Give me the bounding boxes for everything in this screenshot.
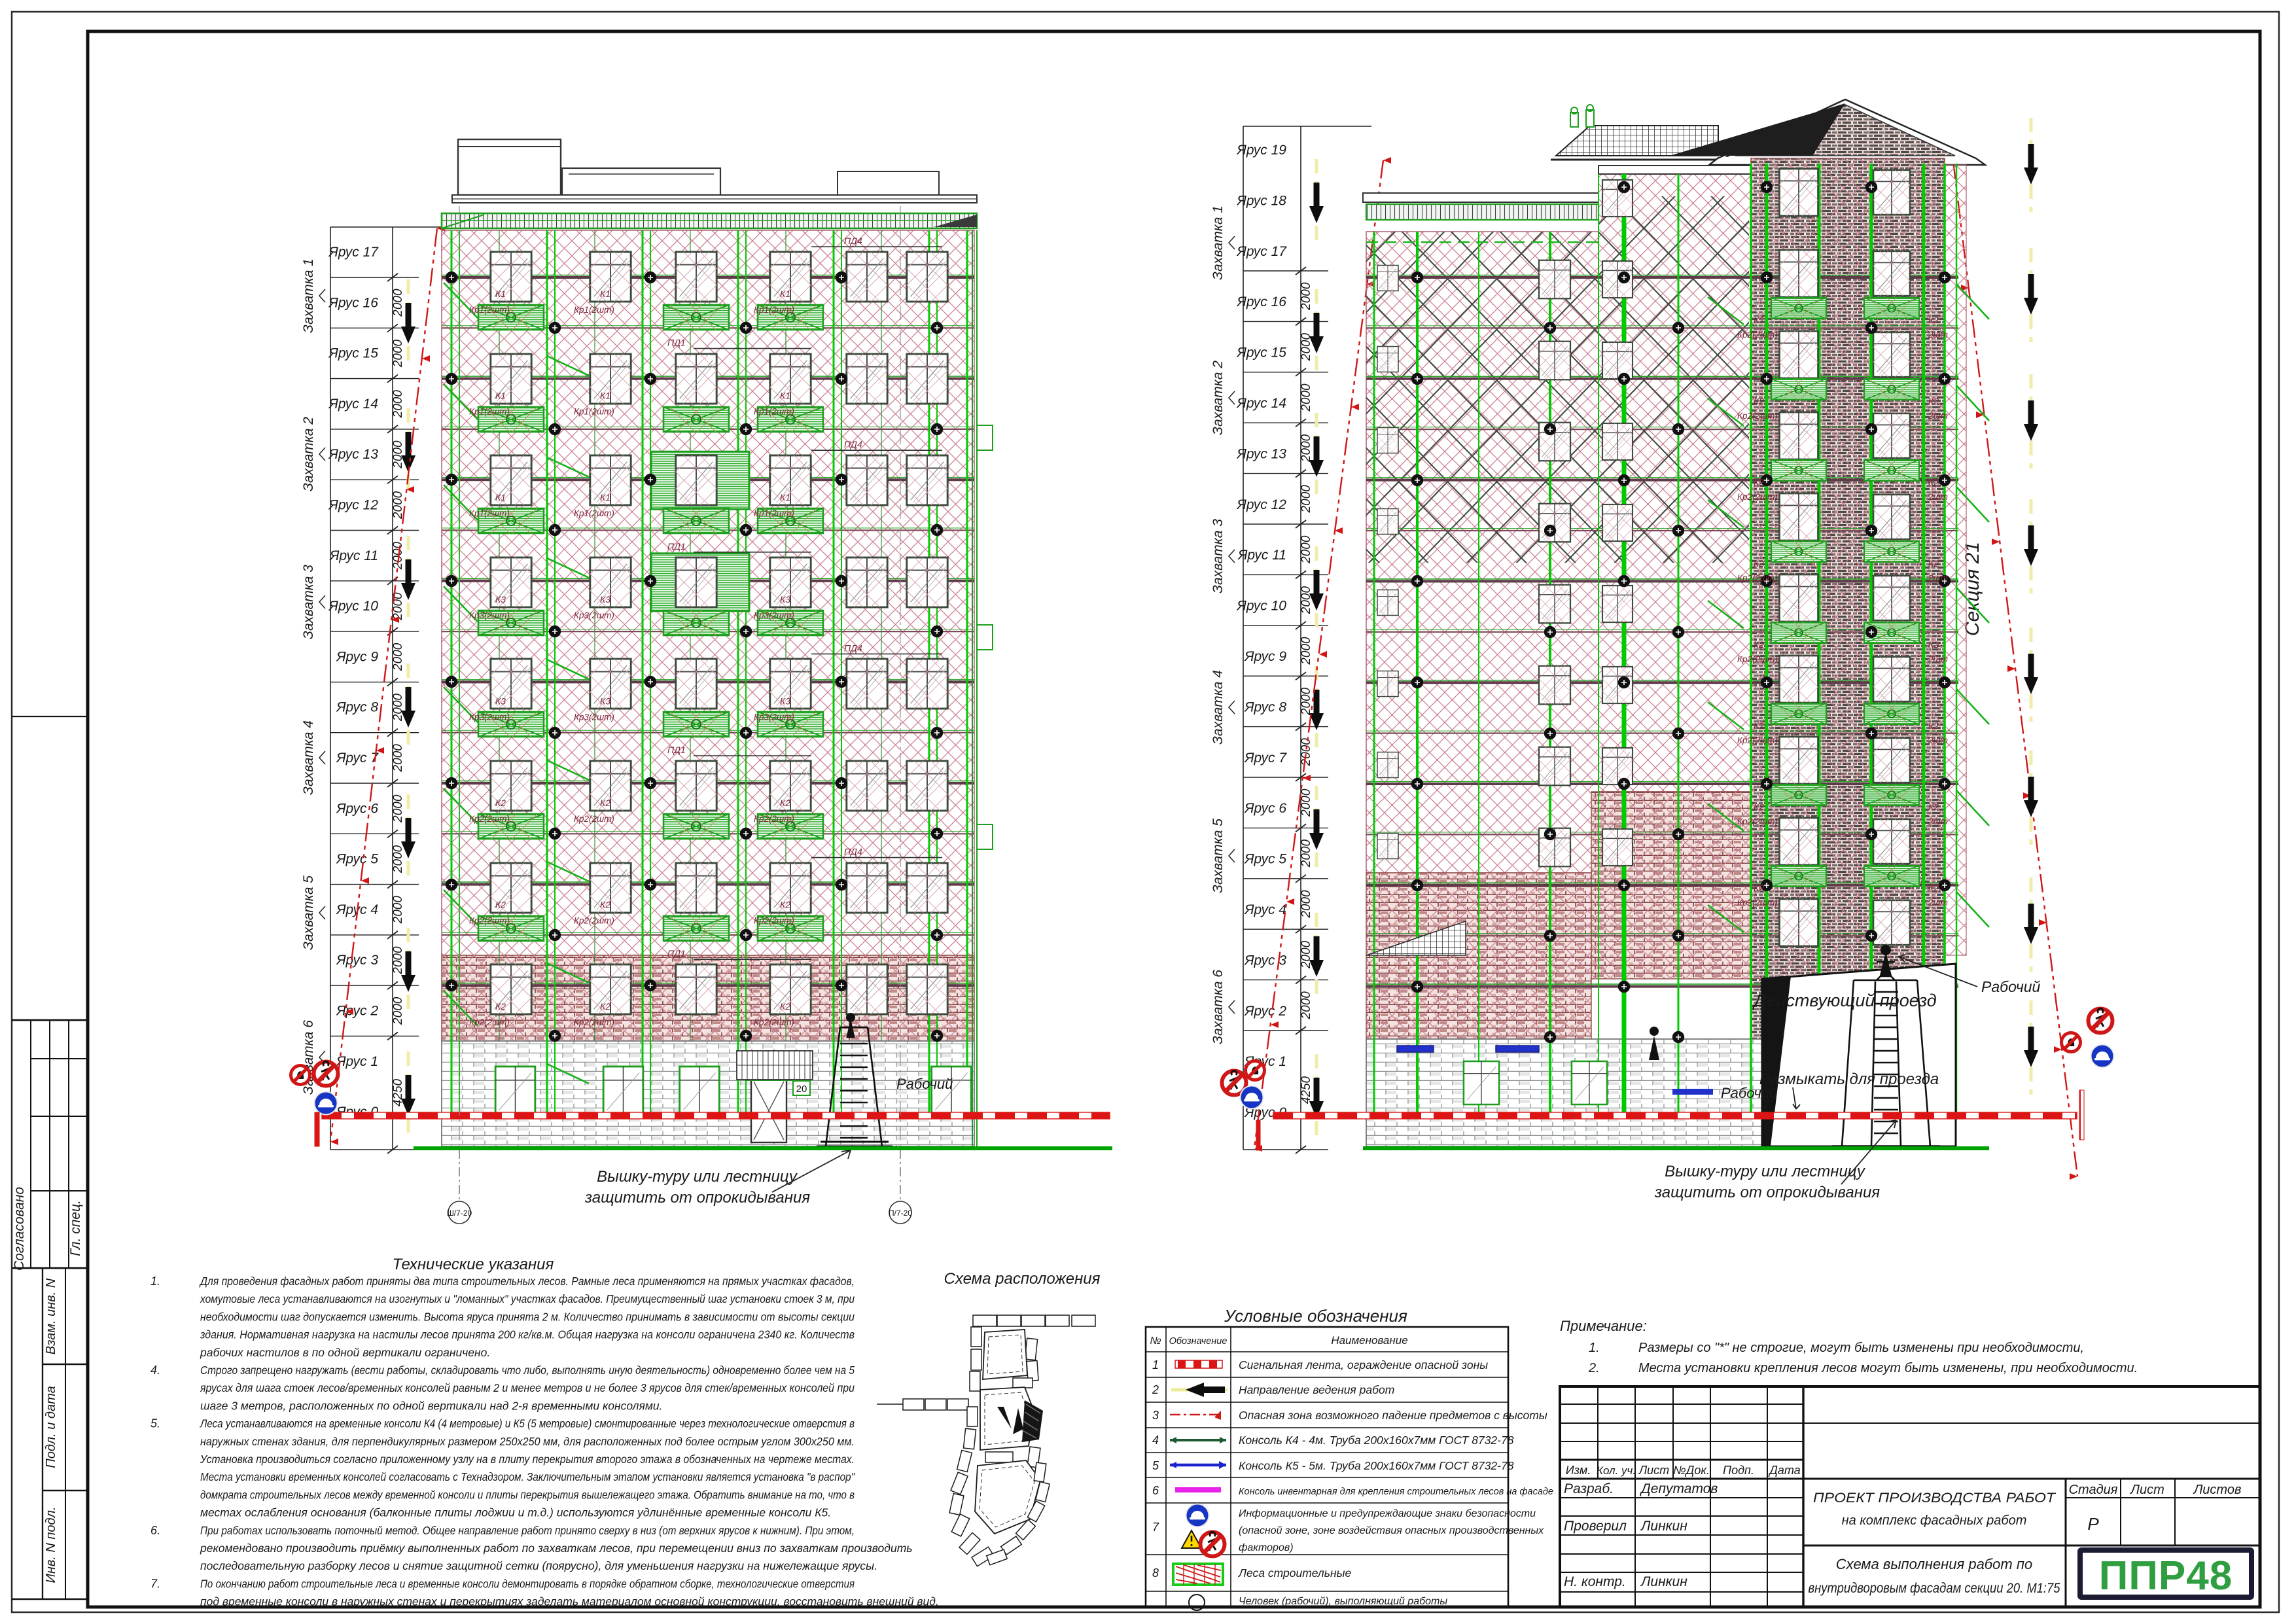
svg-text:Рабочий: Рабочий (1721, 1085, 1777, 1101)
svg-text:Инв. N подл.: Инв. N подл. (44, 1507, 58, 1583)
svg-text:Кр1(2шт): Кр1(2шт) (469, 508, 510, 518)
svg-text:Захватка 5: Захватка 5 (301, 875, 316, 950)
svg-text:рекомендовано производить приё: рекомендовано производить приёмку выполн… (200, 1542, 912, 1555)
svg-text:Изм.: Изм. (1566, 1464, 1591, 1477)
svg-text:Захватка 3: Захватка 3 (1210, 519, 1226, 593)
svg-text:К2: К2 (1754, 639, 1764, 650)
svg-text:1.: 1. (150, 1275, 160, 1288)
svg-text:2шт: 2шт (1928, 330, 1948, 340)
svg-text:По окончанию работ строител: По окончанию работ строительные леса и в… (200, 1577, 855, 1590)
svg-text:Кр3(2шт): Кр3(2шт) (469, 712, 510, 722)
svg-text:К3: К3 (495, 696, 506, 706)
svg-text:Кр3(2шт): Кр3(2шт) (574, 712, 614, 722)
svg-text:Кр2(2шт): Кр2(2шт) (1737, 411, 1778, 421)
svg-text:Размыкать для проезда: Размыкать для проезда (1759, 1070, 1939, 1088)
svg-text:К3: К3 (780, 594, 790, 605)
svg-text:ПД1: ПД1 (667, 745, 686, 755)
svg-text:4.: 4. (150, 1364, 160, 1377)
svg-text:К2: К2 (495, 900, 506, 910)
svg-text:Ярус 14: Ярус 14 (1237, 396, 1287, 411)
svg-text:Кр2(2шт): Кр2(2шт) (1737, 330, 1778, 340)
svg-text:Ярус 6: Ярус 6 (336, 801, 378, 816)
svg-text:ПД4: ПД4 (844, 236, 862, 246)
svg-text:Кр3(2шт): Кр3(2шт) (574, 610, 614, 620)
svg-text:2000: 2000 (1299, 586, 1313, 615)
svg-text:8: 8 (1152, 1566, 1159, 1580)
svg-text:Ярус 4: Ярус 4 (1244, 902, 1286, 917)
svg-text:2000: 2000 (391, 289, 405, 317)
svg-text:Ярус 11: Ярус 11 (1237, 548, 1286, 563)
svg-text:К2: К2 (780, 798, 790, 808)
svg-text:Листов: Листов (2193, 1483, 2242, 1497)
svg-text:Кр3(2шт): Кр3(2шт) (469, 610, 510, 620)
svg-text:ярусах для шага стоек лесо: ярусах для шага стоек лесов/временных ко… (200, 1381, 855, 1394)
svg-text:шаге 3 метров, расположенных п: шаге 3 метров, расположенных по одной ве… (200, 1399, 663, 1412)
svg-text:Ярус 14: Ярус 14 (328, 397, 379, 412)
svg-text:Кол. уч.: Кол. уч. (1597, 1464, 1636, 1477)
svg-text:К2: К2 (1754, 477, 1764, 487)
svg-text:К2: К2 (1928, 883, 1939, 893)
svg-text:К2: К2 (1928, 315, 1939, 325)
svg-text:ППР48: ППР48 (2099, 1553, 2233, 1598)
svg-text:2000: 2000 (1299, 991, 1313, 1020)
svg-text:Ярус 8: Ярус 8 (336, 700, 378, 715)
svg-text:под временные консоли в наружн: под временные консоли в наружных стенах … (200, 1595, 939, 1608)
svg-text:Кр2(2шт): Кр2(2шт) (754, 916, 794, 926)
svg-text:защитить от опрокидывания: защитить от опрокидывания (584, 1189, 810, 1207)
svg-text:ПД1: ПД1 (667, 948, 686, 959)
svg-text:Кр1(2шт): Кр1(2шт) (574, 508, 614, 518)
svg-text:необходимости шаг допускаетс: необходимости шаг допускается изменить. … (200, 1310, 855, 1323)
svg-text:Информационные и предупреждающ: Информационные и предупреждающие знаки б… (1239, 1508, 1536, 1519)
svg-text:Захватка 1: Захватка 1 (301, 258, 316, 333)
svg-text:Кр1(2шт): Кр1(2шт) (574, 305, 614, 315)
svg-text:Кр2(2шт): Кр2(2шт) (1737, 573, 1778, 583)
svg-text:2000: 2000 (391, 643, 405, 671)
svg-text:Обозначение: Обозначение (1169, 1336, 1227, 1347)
svg-text:К2: К2 (495, 798, 506, 808)
svg-text:Места установки крепления лесо: Места установки крепления лесов могут бы… (1638, 1361, 2138, 1375)
svg-text:Кр2(2шт): Кр2(2шт) (469, 1017, 510, 1027)
svg-text:последовательную разборку лесо: последовательную разборку лесов и снятие… (200, 1559, 877, 1572)
svg-text:Кр2(2шт): Кр2(2шт) (574, 814, 614, 824)
svg-text:Опасная зона возможного падени: Опасная зона возможного падение предмето… (1239, 1409, 1547, 1422)
svg-text:Линкин: Линкин (1640, 1519, 1687, 1534)
svg-text:К2: К2 (780, 900, 790, 910)
svg-text:2000: 2000 (1299, 890, 1313, 919)
svg-text:2000: 2000 (391, 744, 405, 773)
svg-text:Проверил: Проверил (1564, 1519, 1627, 1534)
svg-text:Кр1(2шт): Кр1(2шт) (754, 305, 794, 315)
svg-text:Подп.: Подп. (1723, 1464, 1754, 1477)
svg-text:Ярус 19: Ярус 19 (1237, 143, 1287, 158)
svg-text:2000: 2000 (391, 693, 405, 722)
svg-text:Вышку-туру или лестницу: Вышку-туру или лестницу (597, 1168, 798, 1186)
svg-text:К3: К3 (600, 696, 610, 706)
svg-text:К1: К1 (600, 289, 610, 299)
svg-text:ПД1: ПД1 (667, 338, 686, 348)
svg-text:Взам. инв. N: Взам. инв. N (44, 1278, 58, 1354)
svg-text:К2: К2 (1754, 558, 1764, 569)
svg-text:К2: К2 (1754, 720, 1764, 731)
svg-text:Кр1(2шт): Кр1(2шт) (469, 305, 510, 315)
svg-text:К2: К2 (1928, 802, 1939, 812)
svg-text:5.: 5. (150, 1417, 160, 1430)
svg-text:К2: К2 (1928, 720, 1939, 731)
svg-text:2000: 2000 (391, 339, 405, 368)
svg-text:Ярус 7: Ярус 7 (336, 750, 379, 766)
svg-text:Гл. спец.: Гл. спец. (68, 1200, 83, 1256)
svg-text:Строго запрещено нагружать: Строго запрещено нагружать (вести работы… (200, 1364, 855, 1377)
svg-text:2шт: 2шт (1928, 817, 1948, 826)
svg-text:2000: 2000 (391, 946, 405, 975)
svg-text:5: 5 (1152, 1459, 1159, 1472)
svg-text:Лист: Лист (2129, 1483, 2164, 1497)
svg-text:Захватка 1: Захватка 1 (1210, 205, 1226, 280)
svg-text:Кр1(2шт): Кр1(2шт) (469, 407, 510, 417)
svg-text:2: 2 (1152, 1383, 1159, 1396)
svg-text:К2: К2 (600, 900, 610, 910)
svg-text:Кр1(2шт): Кр1(2шт) (574, 407, 614, 417)
svg-text:К1: К1 (780, 391, 790, 401)
svg-text:2000: 2000 (391, 896, 405, 925)
svg-text:Ярус 12: Ярус 12 (328, 498, 379, 513)
svg-text:Кр2(2шт): Кр2(2шт) (1737, 654, 1778, 664)
svg-text:2000: 2000 (391, 997, 405, 1025)
svg-text:К3: К3 (600, 594, 610, 605)
svg-text:К2: К2 (600, 1001, 610, 1012)
svg-text:4250: 4250 (1299, 1076, 1313, 1104)
svg-text:Условные обозначения: Условные обозначения (1224, 1306, 1407, 1326)
svg-text:2000: 2000 (391, 794, 405, 823)
svg-text:К2: К2 (1754, 883, 1764, 893)
svg-text:Кр1(2шт): Кр1(2шт) (754, 407, 794, 417)
svg-text:1.: 1. (1589, 1341, 1600, 1355)
svg-text:2000: 2000 (1299, 788, 1313, 817)
svg-text:2000: 2000 (1299, 535, 1313, 564)
svg-text:Кр3(2шт): Кр3(2шт) (754, 610, 794, 620)
svg-text:Захватка 5: Захватка 5 (1210, 819, 1226, 893)
svg-text:Рабочий: Рабочий (896, 1076, 953, 1092)
svg-text:К2: К2 (495, 1001, 506, 1012)
svg-text:Рабочий: Рабочий (1981, 978, 2041, 995)
svg-text:Ярус 2: Ярус 2 (336, 1004, 378, 1019)
svg-text:Разраб.: Разраб. (1564, 1481, 1614, 1496)
svg-text:Ярус 15: Ярус 15 (1237, 345, 1287, 361)
svg-text:При работах использовать поточ: При работах использовать поточный метод.… (200, 1524, 855, 1537)
svg-text:Ярус 2: Ярус 2 (1244, 1004, 1286, 1019)
svg-text:Кр2(2шт): Кр2(2шт) (469, 916, 510, 926)
svg-text:рабочих настилов в по одной ве: рабочих настилов в по одной вертикали ог… (200, 1346, 490, 1359)
svg-text:Захватка 4: Захватка 4 (301, 720, 316, 795)
svg-text:факторов): факторов) (1239, 1542, 1294, 1553)
svg-text:№Док.: №Док. (1673, 1464, 1710, 1477)
svg-text:местах ослабления основания (б: местах ослабления основания (балконные п… (200, 1506, 831, 1519)
svg-text:Кр2(2шт): Кр2(2шт) (1737, 898, 1778, 908)
svg-text:2000: 2000 (1299, 839, 1313, 868)
svg-text:Ярус 13: Ярус 13 (328, 447, 379, 462)
svg-text:Ярус 16: Ярус 16 (328, 295, 379, 310)
svg-text:2шт: 2шт (1928, 411, 1948, 421)
svg-text:Захватка 3: Захватка 3 (301, 565, 316, 639)
svg-text:ПД4: ПД4 (844, 439, 862, 450)
svg-text:Кр2(2шт): Кр2(2шт) (1737, 492, 1778, 502)
svg-text:П/7-20: П/7-20 (889, 1209, 912, 1218)
svg-text:Схема расположения: Схема расположения (944, 1270, 1101, 1288)
svg-text:6.: 6. (150, 1524, 160, 1537)
svg-text:Согласовано: Согласовано (12, 1187, 27, 1271)
svg-text:2шт: 2шт (1928, 573, 1948, 583)
svg-text:Кр2(2шт): Кр2(2шт) (469, 814, 510, 824)
svg-text:2000: 2000 (391, 390, 405, 419)
svg-text:К2: К2 (1928, 477, 1939, 487)
svg-text:(опасной зоне, зоне воздействи: (опасной зоне, зоне воздействия опасных … (1239, 1525, 1544, 1536)
svg-text:К1: К1 (495, 391, 506, 401)
svg-text:Человек (рабочий), выполняющий: Человек (рабочий), выполняющий работы (1239, 1596, 1447, 1607)
svg-text:2000: 2000 (1299, 282, 1313, 311)
svg-text:на комплекс фасадных работ: на комплекс фасадных работ (1842, 1513, 2027, 1528)
svg-text:Для проведения фасадных раб: Для проведения фасадных работ приняты дв… (199, 1275, 855, 1288)
svg-text:2000: 2000 (1299, 637, 1313, 665)
svg-text:3: 3 (1152, 1409, 1159, 1422)
svg-text:Кр3(2шт): Кр3(2шт) (754, 712, 794, 722)
svg-text:2000: 2000 (1299, 383, 1313, 412)
svg-text:Н. контр.: Н. контр. (1564, 1574, 1626, 1589)
svg-text:домкрата строительных лесов: домкрата строительных лесов между времен… (200, 1488, 855, 1501)
svg-text:Кр2(2шт): Кр2(2шт) (1737, 735, 1778, 745)
svg-text:К1: К1 (495, 492, 506, 503)
svg-text:2шт: 2шт (1928, 898, 1948, 908)
svg-text:Ярус 11: Ярус 11 (329, 548, 378, 563)
svg-text:Ярус 10: Ярус 10 (1237, 599, 1287, 614)
svg-text:6: 6 (1152, 1484, 1159, 1497)
svg-text:Ярус 10: Ярус 10 (328, 599, 379, 614)
svg-text:К2: К2 (1928, 396, 1939, 406)
svg-text:2000: 2000 (1299, 485, 1313, 514)
svg-text:Кр2(2шт): Кр2(2шт) (754, 814, 794, 824)
svg-text:здания. Нормативная нагрузка: здания. Нормативная нагрузка на настилы … (200, 1328, 855, 1341)
svg-text:К1: К1 (780, 289, 790, 299)
svg-text:Ярус 6: Ярус 6 (1244, 801, 1286, 816)
svg-text:Захватка 6: Захватка 6 (1210, 970, 1226, 1044)
svg-text:Кр2(2шт): Кр2(2шт) (754, 1017, 794, 1027)
svg-text:Ш/7-20: Ш/7-20 (447, 1209, 472, 1218)
svg-text:К3: К3 (495, 594, 506, 605)
svg-text:К2: К2 (780, 1001, 790, 1012)
svg-text:Сигнальная лента, ограждение о: Сигнальная лента, ограждение опасной зон… (1239, 1358, 1488, 1371)
svg-text:Захватка 2: Захватка 2 (1210, 361, 1226, 435)
svg-text:Ярус 16: Ярус 16 (1237, 294, 1287, 309)
svg-text:Леса устанавливаются на вре: Леса устанавливаются на временные консол… (200, 1417, 855, 1430)
svg-text:Дата: Дата (1768, 1464, 1801, 1477)
svg-text:К2: К2 (1754, 396, 1764, 406)
svg-text:Вышку-туру или лестницу: Вышку-туру или лестницу (1665, 1163, 1866, 1180)
svg-text:Места установки временных к: Места установки временных консолей согла… (200, 1470, 855, 1483)
svg-text:2шт: 2шт (1928, 654, 1948, 664)
svg-text:ПД4: ПД4 (844, 643, 862, 653)
svg-text:Ярус 5: Ярус 5 (1244, 852, 1286, 867)
svg-text:Ярус 12: Ярус 12 (1237, 497, 1287, 512)
svg-text:2000: 2000 (391, 845, 405, 874)
svg-text:Ярус 3: Ярус 3 (336, 953, 378, 968)
svg-text:2.: 2. (1588, 1361, 1600, 1375)
svg-text:Ярус 15: Ярус 15 (328, 346, 379, 361)
svg-text:хомутовые леса устанавливают: хомутовые леса устанавливаются на изогну… (200, 1292, 855, 1305)
svg-text:Установка производиться согл: Установка производиться согласно приложе… (200, 1453, 855, 1466)
svg-text:ПРОЕКТ ПРОИЗВОДСТВА РАБОТ: ПРОЕКТ ПРОИЗВОДСТВА РАБОТ (1813, 1491, 2057, 1506)
svg-text:Кр2(2шт): Кр2(2шт) (574, 916, 614, 926)
svg-text:Ярус 5: Ярус 5 (336, 852, 378, 867)
svg-text:Депутатов: Депутатов (1640, 1481, 1718, 1496)
svg-text:Подл. и дата: Подл. и дата (44, 1386, 58, 1468)
svg-text:Кр1(2шт): Кр1(2шт) (754, 508, 794, 518)
svg-text:ПД1: ПД1 (667, 541, 686, 552)
svg-text:Консоль К4 - 4м. Труба 200х160: Консоль К4 - 4м. Труба 200х160х7мм ГОСТ … (1239, 1434, 1514, 1447)
svg-text:Линкин: Линкин (1640, 1574, 1687, 1589)
svg-text:К2: К2 (1754, 315, 1764, 325)
svg-text:Захватка 2: Захватка 2 (301, 417, 316, 491)
svg-text:Примечание:: Примечание: (1560, 1318, 1647, 1334)
svg-text:К3: К3 (780, 696, 790, 706)
svg-text:Ярус 18: Ярус 18 (1237, 193, 1287, 208)
svg-text:4: 4 (1152, 1434, 1159, 1447)
svg-text:2000: 2000 (1299, 738, 1313, 767)
svg-text:Ярус 8: Ярус 8 (1244, 699, 1286, 715)
svg-text:Ярус 7: Ярус 7 (1244, 750, 1287, 766)
svg-text:наружных стенах здания, для: наружных стенах здания, для перпендикуля… (200, 1435, 855, 1448)
svg-text:Технические указания: Технические указания (393, 1256, 554, 1273)
svg-text:Ярус 17: Ярус 17 (1237, 244, 1288, 259)
svg-text:Консоль инвентарная для крепле: Консоль инвентарная для крепления строит… (1239, 1487, 1553, 1497)
svg-text:Ярус 9: Ярус 9 (1244, 649, 1286, 664)
svg-text:Леса строительные: Леса строительные (1238, 1566, 1352, 1580)
svg-text:К2: К2 (600, 798, 610, 808)
svg-text:Ярус 17: Ярус 17 (328, 245, 380, 260)
svg-text:ПД4: ПД4 (844, 847, 862, 857)
svg-text:Направление ведения работ: Направление ведения работ (1239, 1383, 1394, 1396)
svg-text:7: 7 (1152, 1521, 1159, 1534)
svg-text:1: 1 (1152, 1358, 1159, 1371)
svg-text:2000: 2000 (1299, 687, 1313, 716)
svg-text:К1: К1 (600, 492, 610, 503)
svg-text:К2: К2 (1928, 639, 1939, 650)
svg-text:Ярус 1: Ярус 1 (336, 1054, 378, 1069)
svg-text:Лист: Лист (1638, 1464, 1669, 1477)
svg-text:Ярус 9: Ярус 9 (336, 649, 378, 664)
svg-text:Действующий проезд: Действующий проезд (1752, 991, 1936, 1010)
svg-text:7.: 7. (150, 1577, 160, 1590)
svg-text:2000: 2000 (1299, 434, 1313, 463)
svg-text:Схема выполнения работ по: Схема выполнения работ по (1836, 1556, 2032, 1572)
svg-text:Р: Р (2087, 1514, 2099, 1534)
svg-text:Захватка 4: Захватка 4 (1210, 670, 1226, 745)
svg-text:№: № (1150, 1335, 1161, 1347)
svg-text:Наименование: Наименование (1331, 1334, 1407, 1347)
svg-text:Стадия: Стадия (2069, 1483, 2118, 1497)
svg-text:К1: К1 (780, 492, 790, 503)
svg-text:защитить от опрокидывания: защитить от опрокидывания (1654, 1184, 1880, 1201)
svg-text:20: 20 (796, 1084, 807, 1095)
svg-text:2шт: 2шт (1928, 492, 1948, 502)
svg-text:Ярус 13: Ярус 13 (1237, 446, 1287, 461)
svg-text:Кр2(2шт): Кр2(2шт) (574, 1017, 614, 1027)
svg-text:2000: 2000 (391, 440, 405, 469)
svg-text:внутридворовым фасадам секции: внутридворовым фасадам секции 20. М1:75 (1809, 1581, 2060, 1596)
svg-text:К2: К2 (1928, 558, 1939, 569)
svg-text:К2: К2 (1754, 802, 1764, 812)
svg-text:Консоль К5 - 5м. Труба 200х160: Консоль К5 - 5м. Труба 200х160х7мм ГОСТ … (1239, 1459, 1514, 1472)
svg-text:2шт: 2шт (1928, 735, 1948, 745)
svg-text:Размеры со "*" не строгие, мог: Размеры со "*" не строгие, могут быть из… (1638, 1341, 2084, 1355)
svg-text:2000: 2000 (1299, 940, 1313, 969)
svg-text:К1: К1 (600, 391, 610, 401)
svg-text:Кр2(2шт): Кр2(2шт) (1737, 817, 1778, 826)
svg-text:К1: К1 (495, 289, 506, 299)
